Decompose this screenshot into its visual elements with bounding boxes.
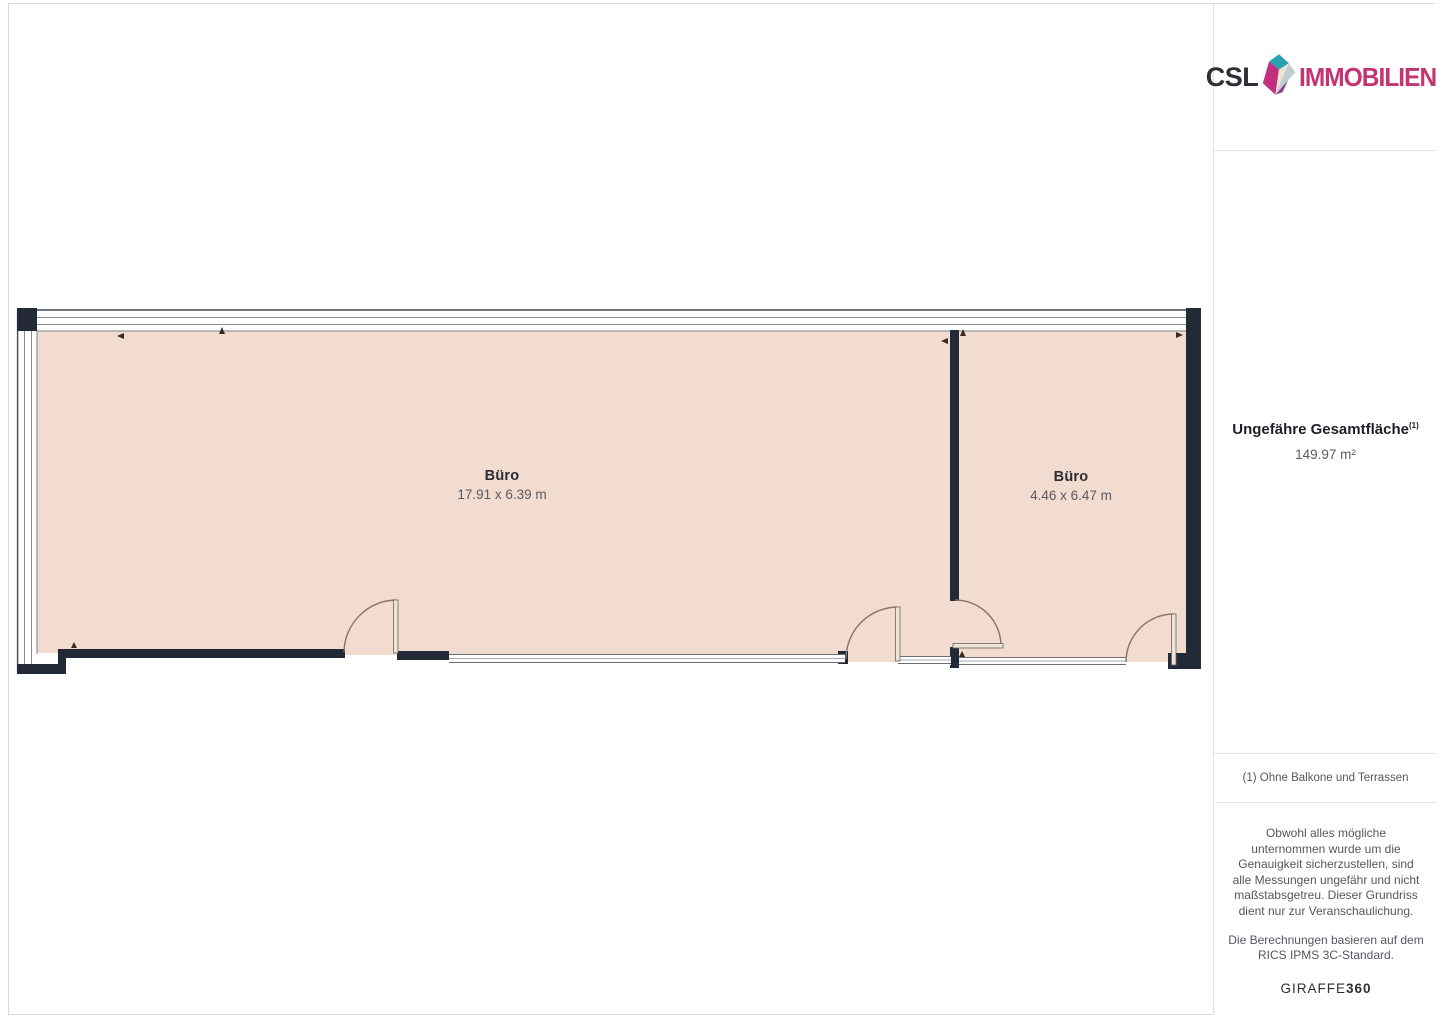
disclaimer-paragraph-1: Obwohl alles mögliche unternommen wurde … (1228, 826, 1424, 920)
logo-section: CSL IMMOBILIEN (1214, 4, 1437, 151)
wall-corner-block (17, 308, 37, 331)
total-area-value: 149.97 m² (1214, 447, 1437, 462)
floorplan-canvas: Büro 17.91 x 6.39 m Büro 4.46 x 6.47 m (0, 0, 1213, 1019)
footnote-marker: (1) (1409, 421, 1419, 430)
wall-bottom-a (58, 649, 345, 658)
giraffe360-name: GIRAFFE (1280, 981, 1346, 996)
floorplan-drawing (0, 0, 1213, 1019)
total-area-title-text: Ungefähre Gesamtfläche (1232, 421, 1409, 438)
room-fill (37, 329, 1186, 662)
total-area-title: Ungefähre Gesamtfläche(1) (1214, 421, 1437, 438)
wall-right (1186, 308, 1201, 668)
giraffe360-logo: GIRAFFE360 (1228, 980, 1424, 998)
disclaimer-block: Obwohl alles mögliche unternommen wurde … (1228, 826, 1424, 997)
csl-immobilien-logo: CSL IMMOBILIEN (1206, 54, 1440, 101)
logo-brand-text: CSL (1206, 62, 1259, 93)
wall-bottom-b (397, 651, 449, 660)
disclaimer-paragraph-2: Die Berechnungen basieren auf dem RICS I… (1228, 933, 1424, 964)
giraffe360-number: 360 (1346, 981, 1372, 996)
total-area-block: Ungefähre Gesamtfläche(1) 149.97 m² (1214, 421, 1437, 462)
info-sidebar: CSL IMMOBILIEN Ungefähre Gesamtfläche(1)… (1213, 4, 1437, 1015)
wall-partition (950, 330, 959, 601)
footnote-text: (1) Ohne Balkone und Terrassen (1243, 772, 1409, 784)
gem-icon (1261, 54, 1297, 101)
footnote-section: (1) Ohne Balkone und Terrassen (1214, 753, 1437, 803)
logo-suffix-text: IMMOBILIEN (1299, 62, 1436, 93)
